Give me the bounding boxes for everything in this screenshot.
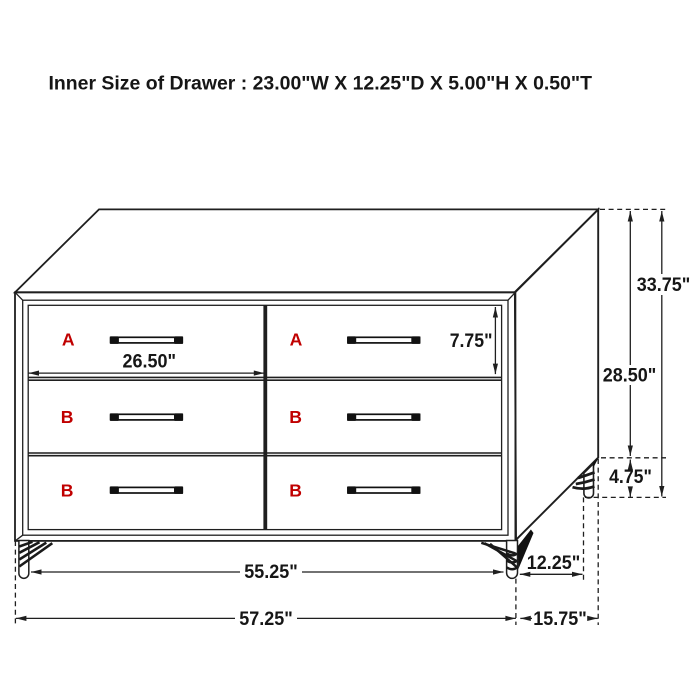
svg-text:57.25": 57.25" — [239, 608, 293, 630]
svg-text:33.75": 33.75" — [637, 274, 691, 296]
svg-text:12.25": 12.25" — [527, 552, 581, 574]
svg-text:15.75": 15.75" — [533, 608, 587, 630]
svg-text:55.25": 55.25" — [244, 561, 298, 583]
svg-text:7.75": 7.75" — [450, 330, 493, 352]
svg-text:B: B — [289, 480, 302, 500]
svg-text:A: A — [290, 330, 303, 350]
svg-text:28.50": 28.50" — [603, 365, 657, 387]
svg-text:26.50": 26.50" — [123, 350, 177, 372]
svg-text:B: B — [289, 407, 302, 427]
svg-text:Inner Size of Drawer : 23.00"W: Inner Size of Drawer : 23.00"W X 12.25"D… — [49, 72, 593, 94]
svg-text:A: A — [62, 330, 75, 350]
svg-text:B: B — [61, 407, 74, 427]
svg-text:4.75": 4.75" — [609, 466, 652, 488]
svg-text:B: B — [61, 480, 74, 500]
